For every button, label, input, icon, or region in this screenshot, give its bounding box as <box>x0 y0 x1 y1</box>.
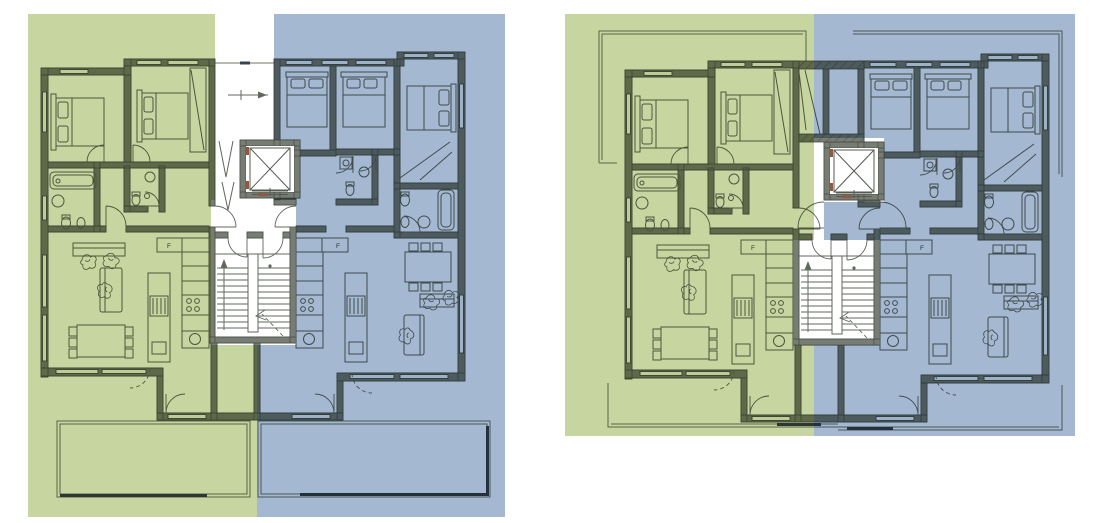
floor-plan-canvas: F <box>0 0 1101 523</box>
unit-blue-overlay <box>814 14 1075 436</box>
canopy-glazing <box>222 182 234 210</box>
direction-arrow <box>258 92 267 99</box>
floor-plan-right <box>565 14 1075 436</box>
floor-plan-left <box>28 14 505 517</box>
unit-green-overlay <box>565 14 814 436</box>
canopy-glazing <box>219 141 233 177</box>
